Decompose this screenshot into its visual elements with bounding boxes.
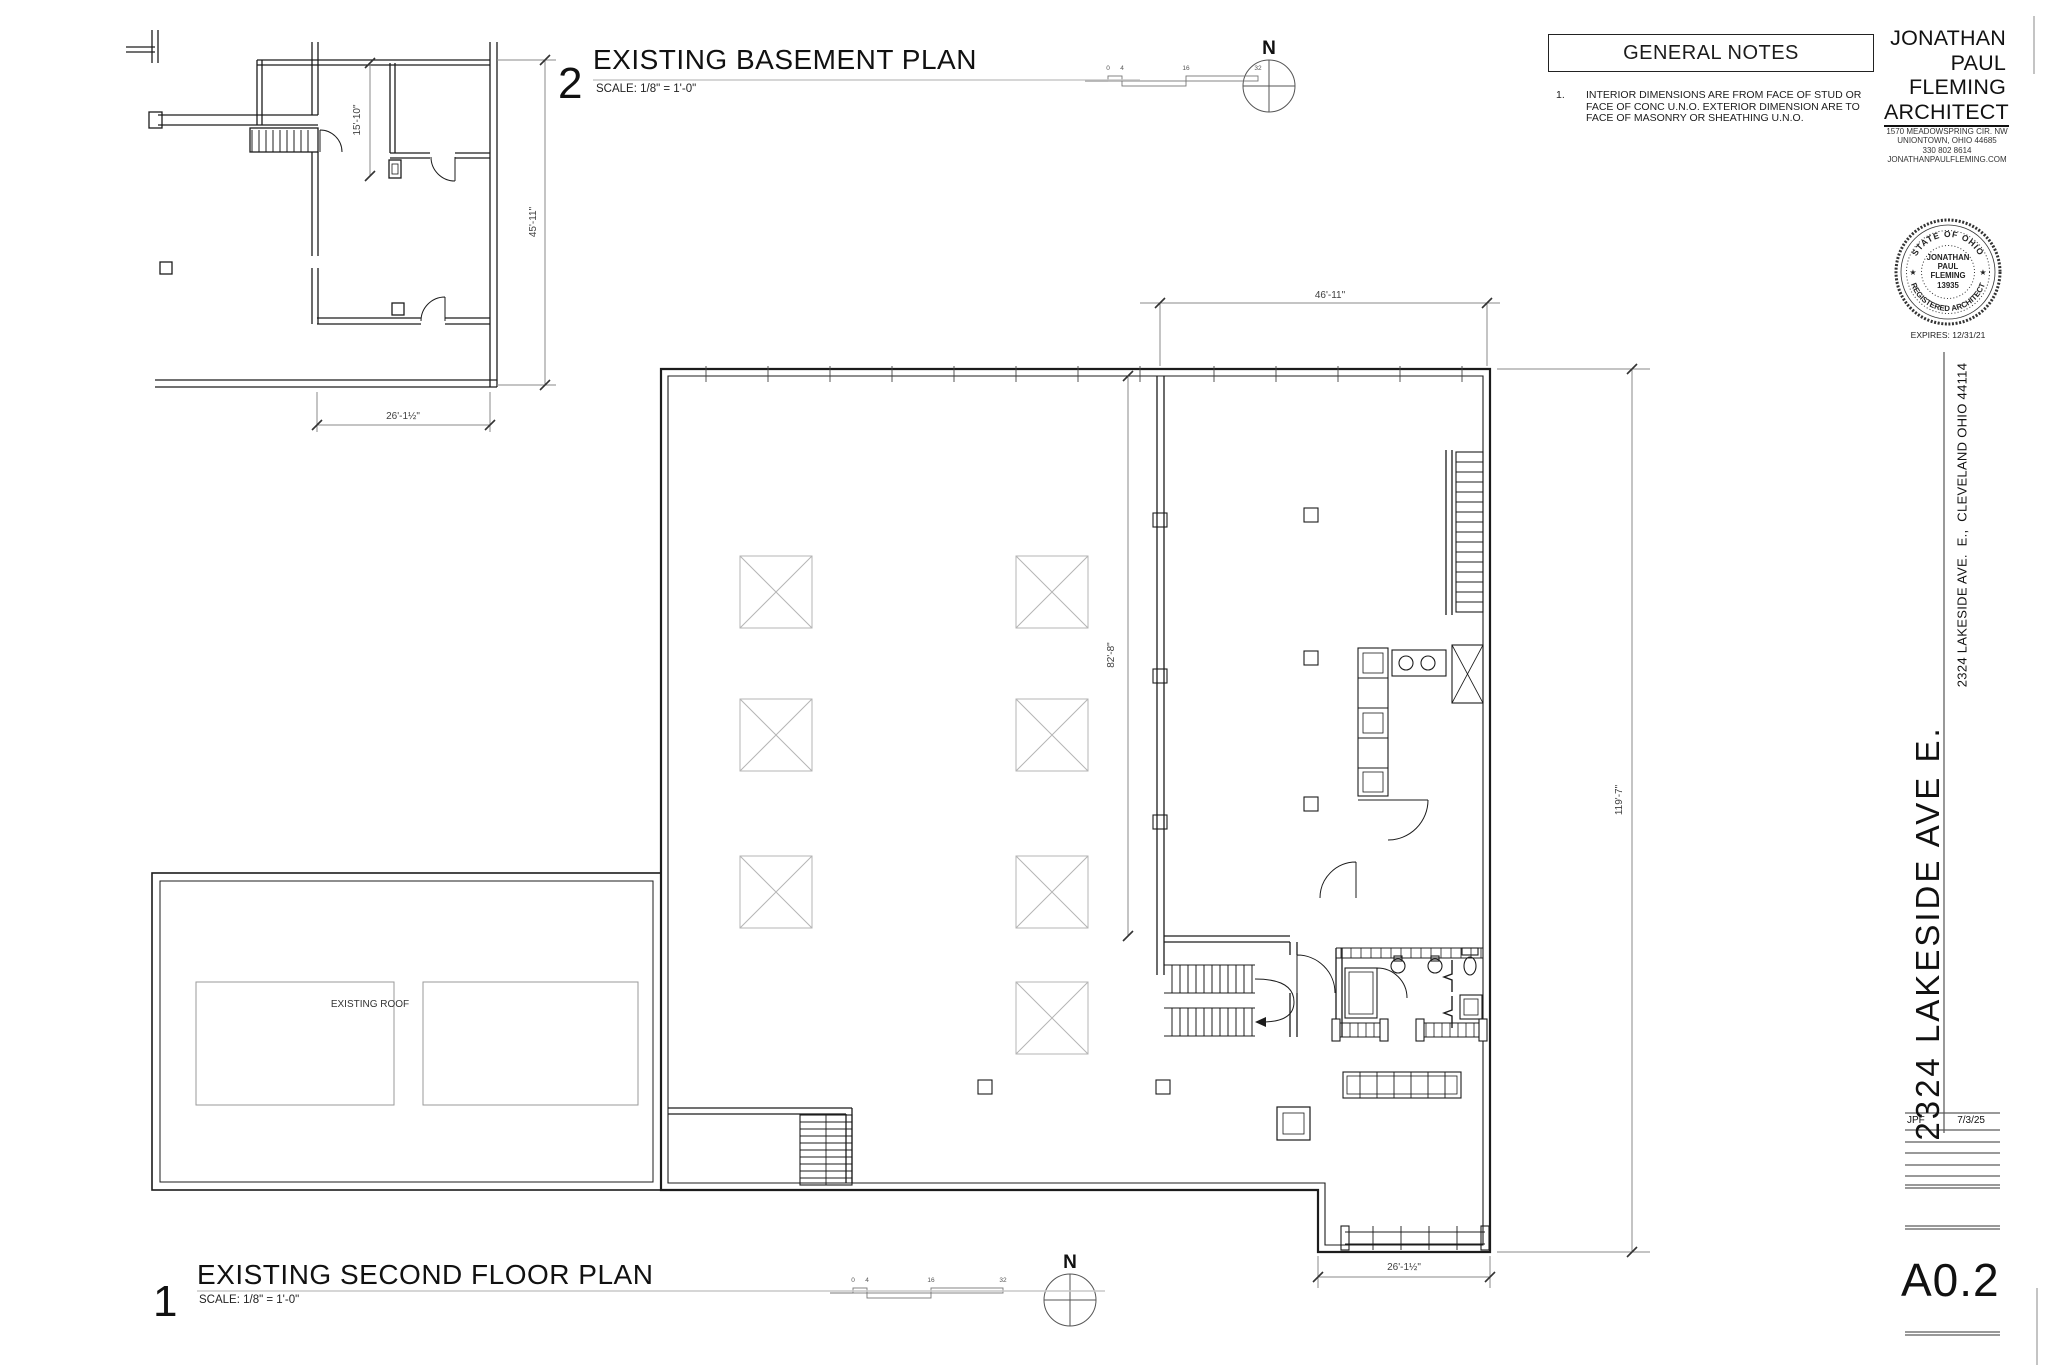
dim-basement-room-depth: 15'-10" (352, 104, 363, 135)
general-note-item: 1. INTERIOR DIMENSIONS ARE FROM FACE OF … (1548, 90, 1870, 125)
seal-star-right: ★ (1979, 268, 1986, 277)
seal-center-line: PAUL (1938, 262, 1959, 271)
general-notes-box: GENERAL NOTES (1548, 34, 1874, 72)
basement-door-arc-stair (320, 130, 342, 152)
revision-date: 7/3/25 (1957, 1115, 1985, 1126)
basement-top-wall (257, 60, 490, 65)
scale-tick: 0 (851, 1277, 855, 1284)
architect-name-line: FLEMING (1884, 75, 2006, 100)
seal-expires: EXPIRES: 12/31/21 (1911, 330, 1986, 340)
general-note-number: 1. (1548, 90, 1586, 125)
basement-plan-number: 2 (558, 62, 582, 106)
scale-tick: 16 (927, 1277, 935, 1284)
sf-columns (978, 508, 1318, 1094)
sf-stair-arrow (1255, 979, 1294, 1022)
scale-bar-bottom (830, 1288, 1003, 1298)
sf-roof-hatches (740, 556, 1088, 1054)
sf-outer-wall (661, 369, 1490, 1252)
architect-name-line: JONATHAN (1884, 26, 2006, 51)
sheet-number: A0.2 (1901, 1253, 2000, 1307)
architect-seal: STATE OF OHIO REGISTERED ARCHITECT ★ ★ J… (1886, 212, 2012, 352)
scale-bar-top (1085, 76, 1258, 86)
basement-right-wall (490, 42, 497, 387)
seal-center-line: FLEMING (1930, 271, 1965, 280)
sf-toilet-area (1290, 942, 1487, 1041)
architect-address-line: UNIONTOWN, OHIO 44685 (1882, 136, 2012, 145)
scale-tick: 4 (865, 1277, 869, 1284)
sf-stair-bl-treads (800, 1115, 852, 1185)
existing-roof-drawing (152, 873, 661, 1190)
general-notes-title: GENERAL NOTES (1623, 42, 1799, 65)
second-floor-plan-drawing (661, 366, 1490, 1252)
basement-wall-fragment (126, 30, 158, 63)
project-address-large: 2324 LAKESIDE AVE E. (1909, 725, 1947, 1140)
basement-landing-wall (158, 115, 318, 125)
north-arrow-bottom (1044, 1274, 1096, 1326)
basement-plan-drawing (126, 30, 497, 387)
basement-fixture-inner (392, 164, 398, 174)
basement-fixture (389, 160, 401, 178)
sf-kitchen (1320, 645, 1483, 898)
sf-dimensions (1123, 298, 1650, 1288)
architect-address-block: 1570 MEADOWSPRING CIR. NW UNIONTOWN, OHI… (1882, 127, 2012, 165)
sf-vestibule-inner (1283, 1113, 1304, 1134)
basement-bottom-wall (155, 380, 497, 387)
north-arrow-top (1243, 60, 1295, 112)
sf-stair-switchback2 (1164, 1008, 1255, 1036)
basement-column (392, 303, 404, 315)
scale-tick: 32 (1254, 65, 1262, 72)
basement-center-wall (312, 42, 318, 324)
dim-sf-interior-depth: 82'-8" (1106, 642, 1117, 668)
scale-tick: 16 (1182, 65, 1190, 72)
second-floor-plan-title: EXISTING SECOND FLOOR PLAN (197, 1261, 653, 1289)
basement-column-open (160, 262, 172, 274)
sf-interior-wall (1157, 376, 1164, 975)
general-note-text: INTERIOR DIMENSIONS ARE FROM FACE OF STU… (1586, 90, 1870, 125)
sf-bar-counter (1343, 1072, 1461, 1098)
architect-address-line: JONATHANPAULFLEMING.COM (1882, 155, 2012, 164)
sf-stair-switchback (1164, 965, 1255, 993)
dim-basement-width: 26'-1½" (386, 411, 420, 422)
basement-room-wall-horiz (390, 153, 490, 158)
north-label-top: N (1262, 38, 1276, 59)
sheet-linework: 45'-11" 15'-10" 26'-1½" EXISTING ROOF (0, 0, 2048, 1365)
second-floor-plan-scale: SCALE: 1/8" = 1'-0" (199, 1295, 299, 1307)
architect-name-line: PAUL (1884, 51, 2006, 76)
basement-lower-wall (317, 318, 490, 324)
sf-stair-arrowhead (1255, 1017, 1266, 1027)
existing-roof-label: EXISTING ROOF (331, 999, 409, 1010)
drawing-sheet: 45'-11" 15'-10" 26'-1½" EXISTING ROOF (0, 0, 2048, 1365)
seal-star-left: ★ (1909, 268, 1916, 277)
architect-address-line: 330 802 8614 (1882, 146, 2012, 155)
scale-tick: 4 (1120, 65, 1124, 72)
sf-corridor-wall (1164, 936, 1290, 942)
project-address-small: 2324 LAKESIDE AVE. E., CLEVELAND OHIO 44… (1955, 363, 1970, 687)
revision-initials: JPF (1907, 1115, 1925, 1126)
basement-plan-scale: SCALE: 1/8" = 1'-0" (596, 84, 696, 96)
scale-tick: 32 (999, 1277, 1007, 1284)
basement-door-arc-room (431, 157, 455, 181)
basement-stair-treads (252, 130, 308, 152)
basement-door-arc-lower (421, 297, 445, 321)
sf-stair-tr-treads (1456, 462, 1483, 602)
basement-plan-title: EXISTING BASEMENT PLAN (593, 46, 977, 74)
architect-name-line: ARCHITECT (1884, 100, 2009, 128)
dim-basement-side: 45'-11" (528, 206, 539, 237)
seal-center-line: JONATHAN (1927, 253, 1970, 262)
scale-tick: 0 (1106, 65, 1110, 72)
revision-row: JPF 7/3/25 (1907, 1115, 1985, 1126)
architect-name-block: JONATHAN PAUL FLEMING ARCHITECT (1884, 26, 2006, 127)
sf-vestibule (1277, 1107, 1310, 1140)
basement-dimensions (312, 55, 556, 432)
dim-sf-bottom-width: 26'-1½" (1387, 1262, 1421, 1273)
sf-stair-tr-wall (1446, 450, 1452, 615)
basement-room-wall-vert (390, 63, 395, 153)
second-floor-plan-number: 1 (153, 1280, 177, 1324)
sf-stair-room-walls (668, 1108, 852, 1183)
seal-center-line: 13935 (1937, 281, 1959, 290)
north-label-bottom: N (1063, 1252, 1077, 1273)
architect-address-line: 1570 MEADOWSPRING CIR. NW (1882, 127, 2012, 136)
dim-sf-side: 119'-7" (1614, 784, 1625, 815)
sf-bench (1341, 1226, 1489, 1250)
dim-sf-wing-width: 46'-11" (1315, 290, 1346, 301)
